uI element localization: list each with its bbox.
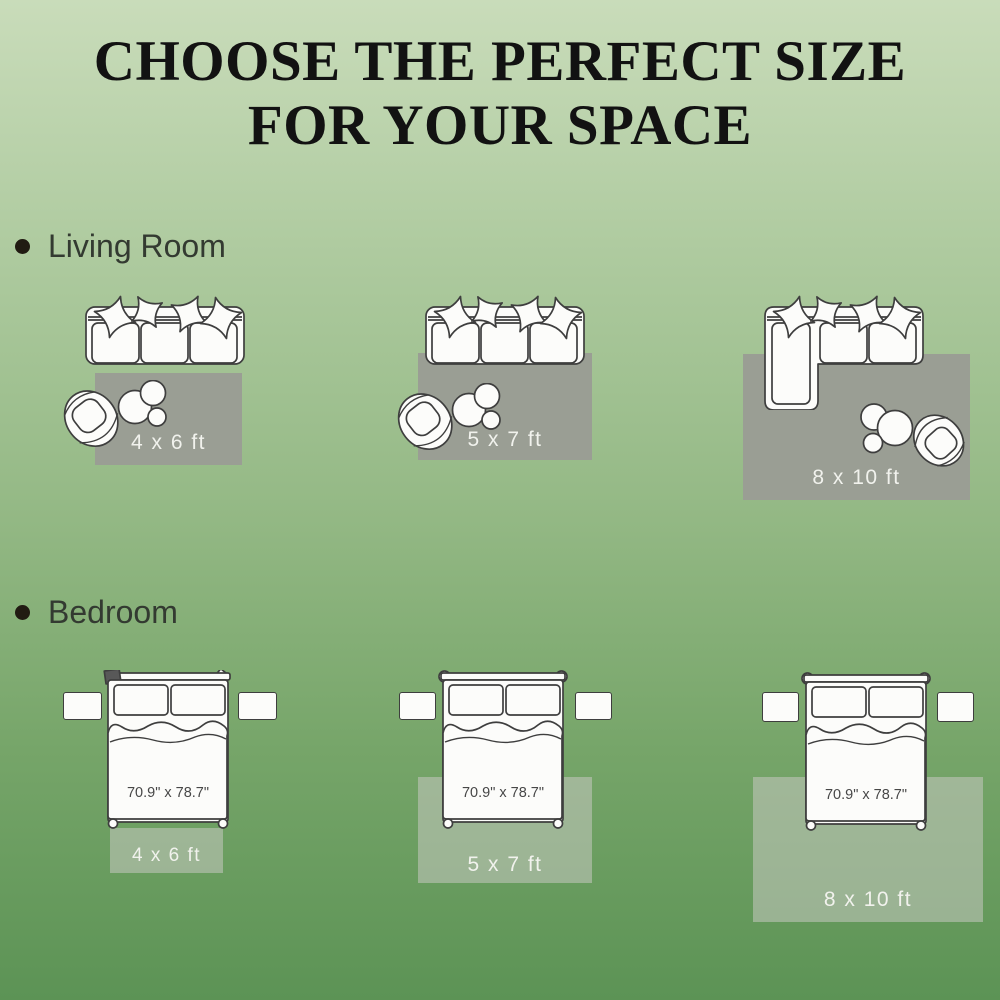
bed-icon: 70.9" x 78.7" (801, 672, 931, 832)
armchair-icon (391, 383, 463, 459)
section-living-room-label: Living Room (48, 228, 226, 265)
page-title: CHOOSE THE PERFECT SIZE FOR YOUR SPACE (0, 30, 1000, 158)
section-bedroom-label: Bedroom (48, 594, 178, 631)
armchair-icon (904, 405, 974, 476)
bullet-icon (15, 605, 30, 620)
living-furniture-3 (845, 398, 977, 482)
nightstand-left (63, 692, 102, 720)
bed-dimensions-label: 70.9" x 78.7" (462, 785, 544, 801)
bullet-icon (15, 239, 30, 254)
living-furniture-2 (391, 383, 513, 465)
section-living-room: Living Room (15, 228, 226, 265)
bed-blanket (443, 721, 563, 819)
section-bedroom: Bedroom (15, 594, 178, 631)
nightstand-right (238, 692, 277, 720)
bed-dimensions-label: 70.9" x 78.7" (825, 787, 907, 803)
coffee-table-icon (119, 381, 167, 427)
rug-size-label: 8 x 10 ft (753, 888, 983, 912)
sectional-sofa-icon (764, 289, 924, 410)
coffee-table-icon (453, 384, 501, 430)
bed-dimensions-label: 70.9" x 78.7" (127, 785, 209, 801)
bed-icon: 70.9" x 78.7" (103, 670, 233, 830)
nightstand-left (762, 692, 799, 722)
rug-size-label: 5 x 7 ft (418, 853, 592, 877)
armchair-icon (57, 380, 129, 456)
title-line-1: CHOOSE THE PERFECT SIZE (0, 30, 1000, 94)
living-furniture-1 (57, 380, 179, 462)
sofa-icon (425, 289, 585, 365)
bedroom-rug-4x6: 4 x 6 ft (110, 828, 223, 873)
rug-size-infographic: CHOOSE THE PERFECT SIZE FOR YOUR SPACE L… (0, 0, 1000, 1000)
bed-blanket (108, 721, 228, 819)
nightstand-left (399, 692, 436, 720)
bed-blanket (806, 723, 926, 821)
coffee-table-icon (861, 404, 913, 453)
sofa-icon (85, 289, 245, 365)
nightstand-right (937, 692, 974, 722)
title-line-2: FOR YOUR SPACE (0, 94, 1000, 158)
rug-size-label: 4 x 6 ft (110, 845, 223, 867)
bed-icon: 70.9" x 78.7" (438, 670, 568, 830)
nightstand-right (575, 692, 612, 720)
